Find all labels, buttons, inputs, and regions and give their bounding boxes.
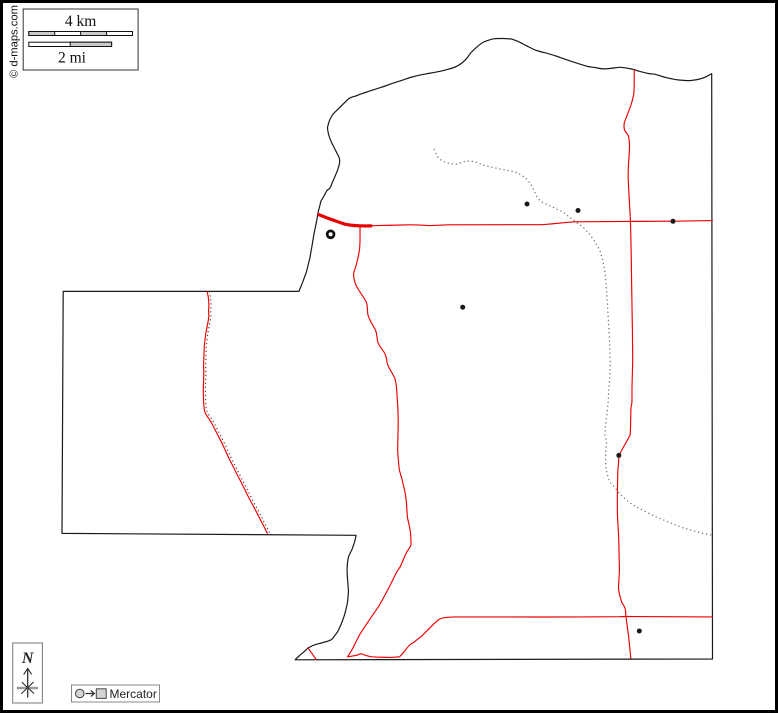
svg-text:Mercator: Mercator bbox=[110, 687, 157, 701]
svg-text:© d-maps.com: © d-maps.com bbox=[8, 5, 20, 78]
svg-text:4 km: 4 km bbox=[65, 13, 96, 30]
svg-text:2 mi: 2 mi bbox=[58, 50, 87, 67]
svg-text:N: N bbox=[21, 650, 35, 667]
